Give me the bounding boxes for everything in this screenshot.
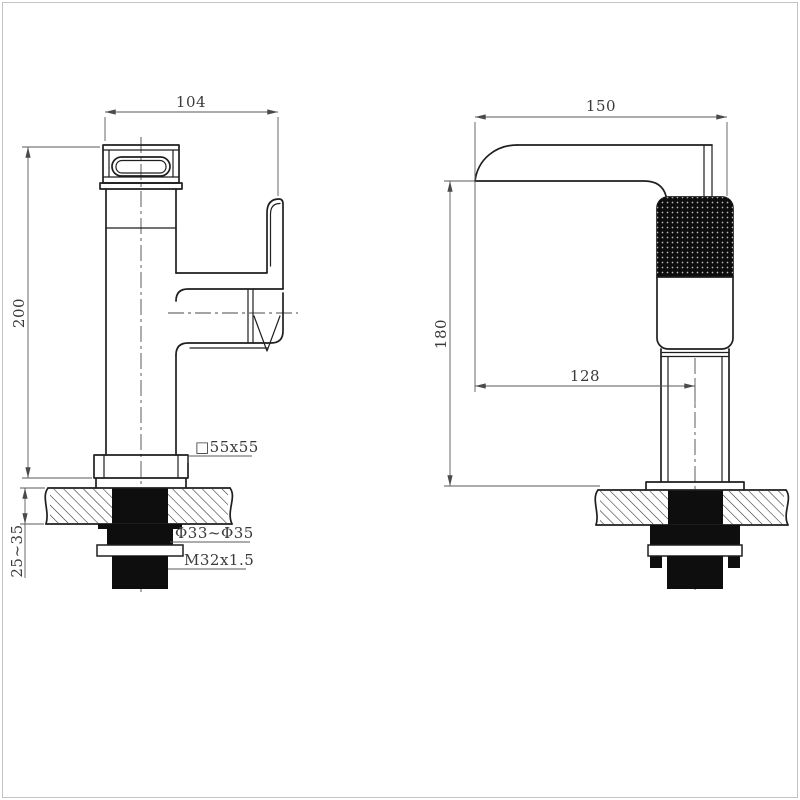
faucet-technical-drawing: 104 200 25~35 □55x55 Φ33~Φ35 M32x1.5 (0, 0, 800, 800)
mounting-hardware-front (97, 524, 183, 589)
knurl-grip (657, 197, 733, 349)
front-height-dimension: 200 (10, 147, 100, 478)
countertop-section-front (45, 488, 232, 525)
mounting-hardware-side (648, 525, 742, 589)
lock-nut (648, 545, 742, 556)
spout-outlet-block (176, 289, 283, 355)
drawing-sheet: 104 200 25~35 □55x55 Φ33~Φ35 M32x1.5 (0, 0, 800, 800)
threaded-shank (667, 556, 723, 589)
mounting-gasket (668, 490, 723, 525)
base-square-callout: □55x55 (188, 438, 259, 463)
countertop-section-side (595, 490, 788, 525)
mounting-gasket (112, 488, 168, 525)
threaded-shank (112, 556, 168, 589)
counter-break-right (786, 490, 788, 525)
hole-diameter-label: Φ33~Φ35 (175, 524, 254, 542)
side-width-dim-label: 150 (586, 97, 616, 115)
shank-collar (107, 524, 173, 545)
base-square-label: □55x55 (195, 438, 259, 456)
counter-thickness-label: 25~35 (8, 524, 26, 577)
counter-hatch-left (600, 491, 668, 524)
front-height-dim-label: 200 (10, 298, 28, 328)
aerator-detail (254, 316, 280, 351)
side-height-dimension: 180 (432, 181, 600, 486)
spout-reach-dimension: 128 (475, 367, 695, 408)
handle-lever (176, 199, 283, 301)
counter-break-right (230, 488, 232, 524)
spout-profile (475, 145, 712, 196)
spout-reach-dim-label: 128 (570, 367, 600, 385)
side-height-dim-label: 180 (432, 319, 450, 349)
knurl-texture (657, 197, 733, 277)
counter-break-left (45, 488, 48, 524)
counter-hatch-right (168, 489, 228, 523)
lock-nut (97, 545, 183, 556)
sheet-border (3, 3, 798, 798)
thread-spec-label: M32x1.5 (184, 551, 254, 569)
hole-diameter-callout: Φ33~Φ35 (170, 524, 254, 542)
counter-hatch-right (723, 491, 784, 524)
counter-break-left (595, 490, 598, 525)
counter-thickness-dimension: 25~35 (8, 488, 45, 578)
front-width-dim-label: 104 (176, 93, 206, 111)
spout-nose-curve (475, 145, 517, 181)
shank-collar (652, 525, 738, 545)
side-view: 150 180 128 (432, 97, 788, 594)
counter-hatch-left (50, 489, 112, 523)
front-view: 104 200 25~35 □55x55 Φ33~Φ35 M32x1.5 (8, 93, 298, 596)
